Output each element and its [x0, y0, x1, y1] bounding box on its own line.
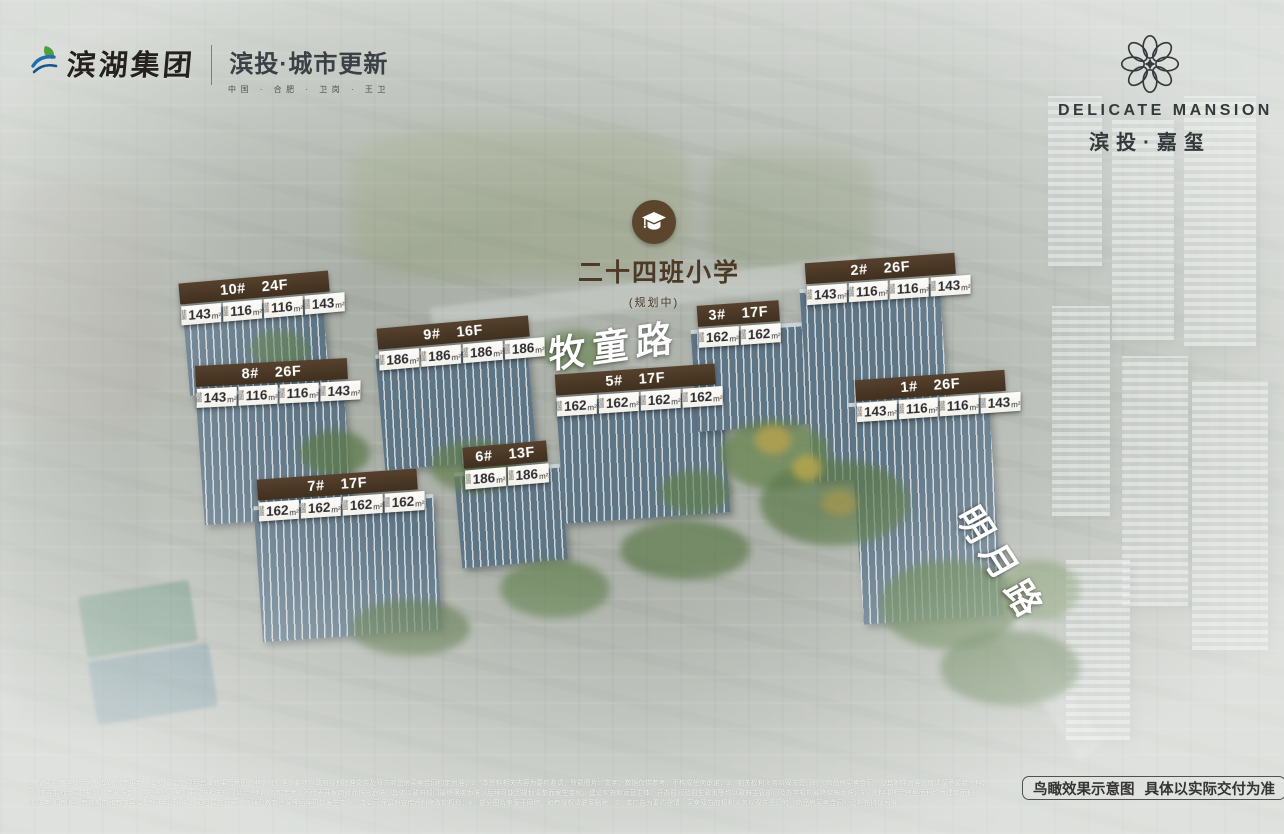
unit-area-value: 162	[706, 329, 728, 346]
greenery	[500, 560, 610, 618]
unit-area-value: 186	[473, 470, 496, 487]
unit-area-prefix: 建面	[890, 285, 896, 295]
unit-area-suffix: m²	[961, 282, 970, 292]
greenery	[792, 455, 822, 481]
unit-area-tag: 建面143m²	[857, 400, 897, 422]
unit-area-tag: 建面143m²	[181, 303, 221, 326]
render-disclaimer-badge: 鸟瞰效果示意图 具体以实际交付为准	[1022, 776, 1284, 800]
building-number: 6#	[475, 448, 493, 465]
landscape-patch	[706, 150, 876, 270]
unit-area-tag: 建面186m²	[463, 341, 503, 364]
building-floors: 16F	[456, 322, 484, 340]
unit-area-prefix: 建面	[849, 287, 855, 297]
unit-area-value: 162	[391, 494, 413, 511]
petal-flower-logo-icon	[1121, 81, 1179, 98]
unit-area-tag: 建面162m²	[641, 389, 681, 411]
unit-area-tag: 建面162m²	[599, 392, 639, 414]
unit-area-tag: 建面162m²	[741, 323, 781, 345]
unit-area-suffix: m²	[771, 331, 780, 341]
unit-area-value: 162	[308, 500, 330, 517]
school-marker: 二十四班小学 (规划中)	[578, 200, 730, 310]
building-floors: 26F	[883, 258, 911, 276]
unit-area-prefix: 建面	[504, 345, 510, 356]
unit-area-prefix: 建面	[280, 389, 286, 399]
school-label: 二十四班小学	[578, 253, 730, 289]
render-disclaimer-text-1: 鸟瞰效果示意图	[1033, 778, 1135, 799]
division-brand: 滨投·城市更新 中国 · 合肥 · 卫岗 · 王卫	[228, 44, 390, 95]
unit-area-suffix: m²	[920, 285, 929, 295]
unit-area-suffix: m²	[227, 394, 236, 404]
unit-area-tag: 建面162m²	[384, 491, 424, 513]
unit-area-prefix: 建面	[940, 402, 946, 412]
unit-area-value: 162	[350, 497, 372, 514]
greenery	[822, 490, 856, 516]
unit-area-value: 116	[230, 302, 252, 319]
unit-area-tag: 建面116m²	[940, 395, 979, 417]
unit-area-value: 116	[286, 385, 308, 401]
unit-area-tag: 建面116m²	[890, 278, 929, 300]
greenery	[940, 630, 1080, 706]
disclaimer-line: 1、该项目广告所示为「滨湖·城市更新｜滨投·嘉玺」项目鸟瞰效果示意图，非交付标准…	[28, 779, 996, 789]
building-label: 3#17F建面162m²建面162m²	[697, 300, 782, 348]
unit-area-suffix: m²	[415, 499, 424, 509]
unit-area-value: 143	[312, 295, 335, 312]
unit-area-suffix: m²	[451, 352, 460, 362]
unit-area-prefix: 建面	[301, 504, 307, 514]
disclaimer-line: 2025年3月制作，有效期内如有内容调整恕不另行通知，项目周边环境、交通及教育资…	[28, 799, 996, 809]
unit-area-prefix: 建面	[264, 303, 270, 314]
greenery	[755, 425, 791, 455]
unit-area-prefix: 建面	[981, 399, 987, 409]
graduation-cap-icon	[632, 200, 676, 244]
unit-area-prefix: 建面	[421, 352, 427, 363]
unit-area-value: 186	[515, 466, 538, 483]
unit-area-value: 116	[947, 397, 969, 414]
unit-area-value: 116	[856, 283, 878, 300]
building-number-bar: 3#17F	[697, 300, 780, 327]
building-floors: 26F	[933, 375, 961, 393]
legal-disclaimer: 1、该项目广告所示为「滨湖·城市更新｜滨投·嘉玺」项目鸟瞰效果示意图，非交付标准…	[28, 779, 996, 808]
unit-area-tag: 建面143m²	[807, 283, 847, 305]
unit-area-tag: 建面162m²	[557, 395, 597, 417]
unit-area-prefix: 建面	[857, 407, 863, 417]
surrounding-tower	[1192, 380, 1268, 650]
building-floors: 17F	[741, 303, 769, 321]
unit-area-prefix: 建面	[197, 393, 203, 403]
unit-area-suffix: m²	[1011, 399, 1020, 409]
unit-area-tag: 建面162m²	[259, 500, 299, 522]
building-number: 10#	[219, 280, 246, 298]
greenery	[660, 470, 730, 514]
unit-area-tag: 建面186m²	[504, 337, 544, 360]
unit-area-suffix: m²	[331, 504, 340, 514]
unit-area-tag: 建面162m²	[343, 494, 383, 516]
unit-area-value: 186	[511, 340, 534, 357]
unit-area-prefix: 建面	[557, 402, 563, 412]
unit-area-value: 143	[204, 389, 227, 405]
unit-area-tag: 建面186m²	[465, 467, 506, 490]
unit-area-tag: 建面143m²	[305, 292, 345, 315]
unit-area-suffix: m²	[928, 405, 937, 415]
unit-area-prefix: 建面	[238, 391, 244, 401]
project-name-en: DELICATE MANSION	[1058, 102, 1242, 120]
unit-area-value: 162	[648, 392, 670, 409]
unit-area-prefix: 建面	[807, 290, 813, 300]
brand-header: 滨湖集团 滨投·城市更新 中国 · 合肥 · 卫岗 · 王卫	[30, 42, 390, 95]
unit-area-suffix: m²	[294, 303, 303, 313]
unit-area-tag: 建面162m²	[301, 497, 341, 519]
unit-area-prefix: 建面	[223, 307, 229, 318]
unit-area-value: 162	[564, 397, 586, 414]
building-floors: 13F	[508, 444, 536, 462]
unit-area-prefix: 建面	[741, 330, 747, 340]
unit-area-suffix: m²	[268, 392, 277, 402]
building-number: 5#	[605, 372, 623, 389]
unit-area-tag: 建面143m²	[197, 387, 237, 408]
unit-area-suffix: m²	[496, 475, 505, 485]
unit-area-tag: 建面162m²	[682, 386, 722, 408]
greenery	[300, 430, 370, 476]
unit-area-prefix: 建面	[931, 282, 937, 292]
unit-area-suffix: m²	[887, 408, 896, 418]
unit-area-suffix: m²	[671, 396, 680, 406]
unit-area-value: 186	[386, 351, 409, 368]
unit-area-tag: 建面116m²	[238, 385, 277, 406]
unit-area-suffix: m²	[970, 402, 979, 412]
building-number: 7#	[307, 477, 325, 494]
unit-area-prefix: 建面	[259, 507, 265, 517]
building-floors: 24F	[261, 277, 289, 295]
group-name: 滨湖集团	[65, 42, 197, 84]
unit-area-value: 143	[938, 277, 960, 294]
unit-area-tag: 建面186m²	[379, 348, 419, 371]
unit-area-value: 116	[271, 299, 293, 316]
unit-area-tag: 建面143m²	[320, 380, 360, 401]
unit-area-tag: 建面116m²	[223, 299, 262, 321]
unit-area-prefix: 建面	[508, 471, 514, 482]
render-disclaimer-text-2: 具体以实际交付为准	[1145, 778, 1276, 799]
unit-area-suffix: m²	[253, 307, 262, 317]
landscape-patch	[0, 180, 160, 440]
unit-area-suffix: m²	[410, 356, 419, 366]
unit-area-tag: 建面116m²	[899, 398, 938, 420]
unit-area-prefix: 建面	[321, 387, 327, 397]
unit-area-suffix: m²	[289, 507, 298, 517]
unit-area-suffix: m²	[878, 288, 887, 298]
unit-area-value: 162	[748, 326, 770, 343]
unit-area-value: 162	[266, 502, 288, 519]
unit-area-prefix: 建面	[343, 501, 349, 511]
building-label: 8#26F建面143m²建面116m²建面116m²建面143m²	[195, 358, 349, 408]
project-name-cn: 滨投·嘉玺	[1058, 126, 1242, 155]
building-floors: 26F	[274, 363, 301, 380]
division-subtitle: 中国 · 合肥 · 卫岗 · 王卫	[228, 84, 390, 95]
binhu-leaf-logo-icon	[30, 43, 60, 84]
building-label: 6#13F建面186m²建面186m²	[462, 440, 549, 489]
unit-area-value: 162	[689, 389, 711, 406]
building-floors: 17F	[638, 369, 666, 387]
unit-area-prefix: 建面	[181, 311, 187, 322]
unit-area-prefix: 建面	[641, 396, 647, 406]
building-number: 1#	[900, 378, 918, 395]
unit-area-suffix: m²	[212, 311, 221, 321]
unit-area-suffix: m²	[587, 402, 596, 412]
unit-area-prefix: 建面	[463, 348, 469, 359]
unit-area-value: 143	[864, 403, 886, 420]
building-floors: 17F	[340, 474, 368, 492]
unit-area-prefix: 建面	[899, 404, 905, 414]
unit-area-value: 116	[906, 400, 928, 417]
logo-divider	[211, 45, 212, 85]
unit-area-tag: 建面162m²	[699, 326, 739, 348]
building-number: 2#	[850, 261, 868, 278]
unit-area-suffix: m²	[335, 300, 344, 310]
unit-area-suffix: m²	[373, 501, 382, 511]
building-number: 9#	[423, 326, 441, 343]
project-logo: DELICATE MANSION 滨投·嘉玺	[1058, 34, 1242, 155]
unit-area-suffix: m²	[535, 345, 544, 355]
unit-area-tag: 建面143m²	[931, 275, 971, 297]
unit-area-prefix: 建面	[466, 475, 472, 486]
unit-area-prefix: 建面	[682, 393, 688, 403]
unit-area-suffix: m²	[351, 388, 360, 398]
unit-area-tag: 建面116m²	[264, 296, 303, 318]
disclaimer-line: 4、广告中所示周边规划、市政配套、学校等信息来源于政府相关部门公示资料，仅供参考…	[28, 789, 996, 799]
surrounding-tower	[1122, 356, 1188, 606]
unit-area-value: 162	[606, 395, 628, 412]
unit-area-value: 186	[428, 347, 451, 364]
unit-area-prefix: 建面	[379, 356, 385, 367]
unit-area-prefix: 建面	[699, 333, 705, 343]
building-number: 8#	[241, 365, 259, 382]
group-logo: 滨湖集团	[30, 42, 195, 84]
unit-area-value: 143	[328, 383, 351, 399]
unit-area-value: 143	[988, 394, 1010, 411]
division-title: 滨投·城市更新	[229, 44, 388, 79]
unit-area-tag: 建面186m²	[421, 344, 461, 367]
unit-area-suffix: m²	[713, 394, 722, 404]
unit-area-tag: 建面116m²	[279, 383, 318, 404]
building-number: 3#	[708, 306, 726, 323]
unit-area-prefix: 建面	[384, 498, 390, 508]
unit-area-suffix: m²	[493, 348, 502, 358]
unit-area-suffix: m²	[629, 399, 638, 409]
unit-area-suffix: m²	[309, 390, 318, 400]
unit-area-tag: 建面186m²	[508, 463, 549, 486]
unit-area-value: 143	[814, 286, 836, 303]
unit-area-value: 116	[897, 280, 919, 297]
surrounding-tower	[1052, 306, 1110, 516]
unit-area-value: 186	[470, 344, 493, 361]
unit-area-value: 143	[188, 306, 211, 323]
greenery	[620, 520, 750, 580]
unit-area-tag: 建面143m²	[981, 392, 1021, 414]
unit-area-prefix: 建面	[599, 399, 605, 409]
greenery	[350, 600, 470, 656]
aerial-rendering-page: 滨湖集团 滨投·城市更新 中国 · 合肥 · 卫岗 · 王卫	[0, 0, 1284, 834]
unit-area-suffix: m²	[729, 334, 738, 344]
unit-area-prefix: 建面	[305, 300, 311, 311]
unit-area-suffix: m²	[539, 471, 548, 481]
unit-area-value: 116	[245, 387, 267, 403]
unit-area-suffix: m²	[837, 291, 846, 301]
unit-area-tag: 建面116m²	[849, 281, 888, 303]
